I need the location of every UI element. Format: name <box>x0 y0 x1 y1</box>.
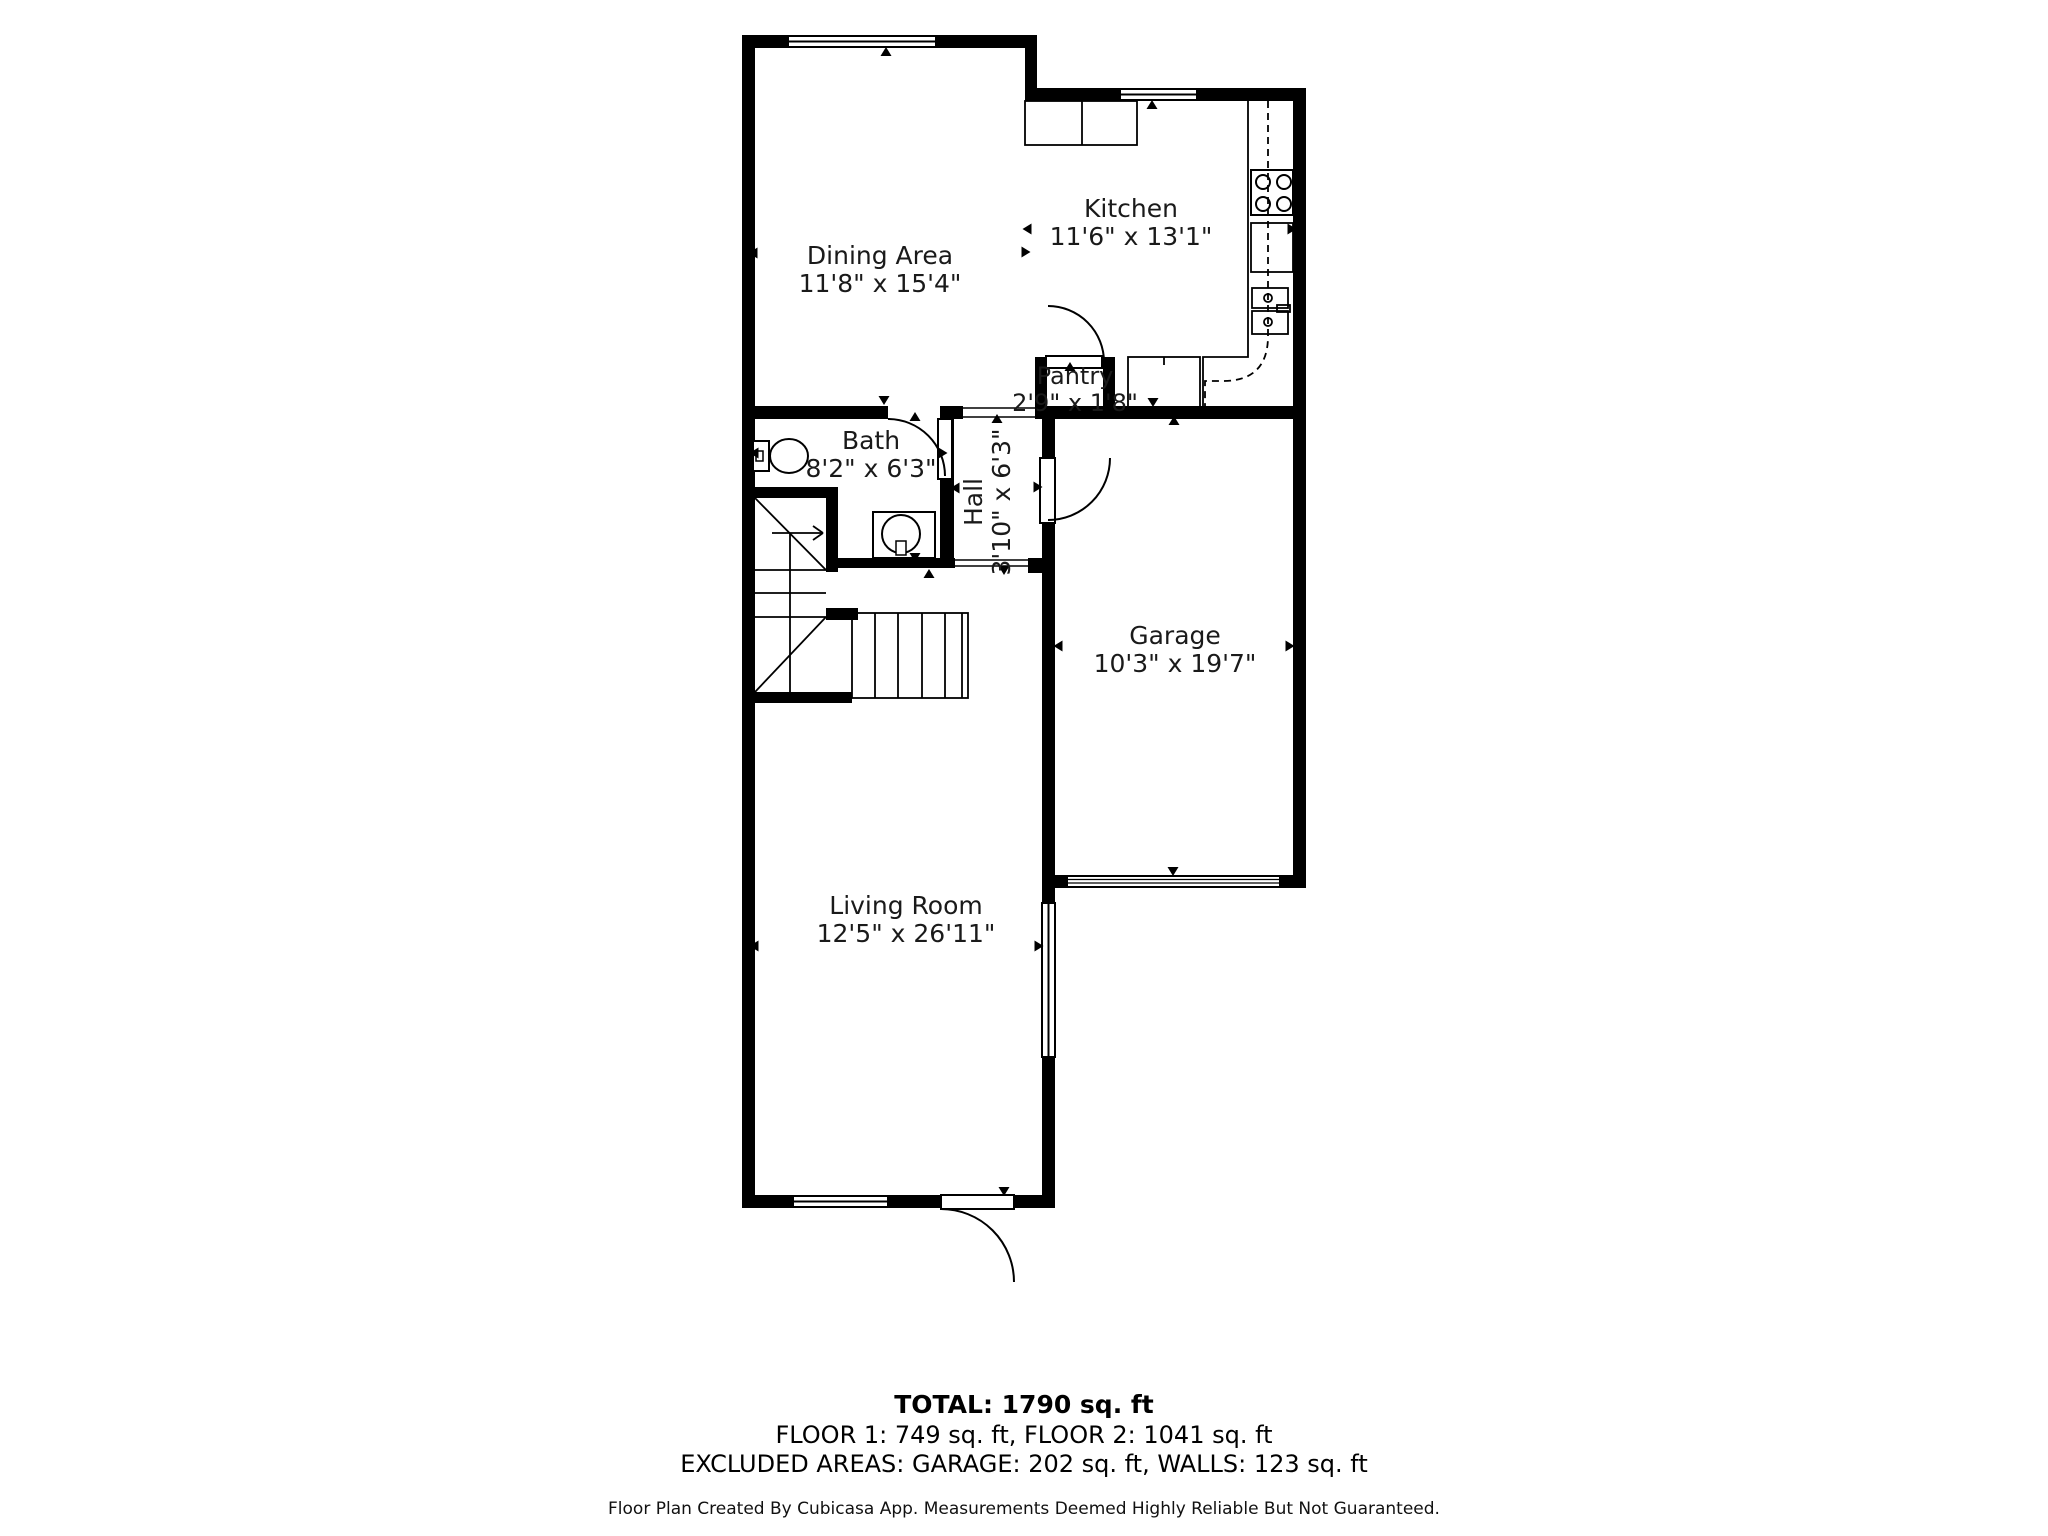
room-name: Garage <box>1094 622 1257 650</box>
room-label-hall: Hall 3'10" x 6'3" <box>960 429 1016 576</box>
stair-direction-arrow <box>772 526 823 540</box>
wall-hall-stub <box>1028 558 1042 573</box>
wall-garage-left-lower <box>1042 523 1055 888</box>
dim-arrow-up <box>910 412 921 421</box>
dim-arrow-up <box>924 569 935 578</box>
wall-right-upper <box>1293 88 1306 419</box>
room-dims: 11'8" x 15'4" <box>799 270 962 298</box>
sink-vanity-icon <box>873 512 935 558</box>
stair-lower-run <box>852 613 968 698</box>
counter-dashed-edge <box>1205 101 1268 406</box>
garage-entry-door <box>1040 458 1110 523</box>
pantry-door <box>1046 306 1104 368</box>
wall-stair-stub <box>826 608 858 620</box>
room-name: Living Room <box>817 892 996 920</box>
window-living-bottom <box>793 1196 888 1207</box>
counter-edge <box>1203 101 1248 406</box>
staircase <box>755 498 968 698</box>
dim-arrow-up <box>1147 100 1158 109</box>
kitchen-sink-icon <box>1252 288 1290 334</box>
area-summary: TOTAL: 1790 sq. ft FLOOR 1: 749 sq. ft, … <box>0 1392 2048 1518</box>
room-label-pantry: Pantry 2'9" x 1'8" <box>1012 363 1138 417</box>
room-label-kitchen: Kitchen 11'6" x 13'1" <box>1050 195 1213 251</box>
room-label-garage: Garage 10'3" x 19'7" <box>1094 622 1257 678</box>
room-label-bath: Bath 8'2" x 6'3" <box>805 427 936 483</box>
room-name: Dining Area <box>799 242 962 270</box>
dim-arrow-down <box>879 396 890 405</box>
room-dims: 12'5" x 26'11" <box>817 920 996 948</box>
dim-arrow-down <box>1148 398 1159 407</box>
room-name: Hall <box>960 429 988 576</box>
dim-arrow-right <box>1022 247 1031 258</box>
room-label-living: Living Room 12'5" x 26'11" <box>817 892 996 948</box>
garage-vehicle-door <box>1067 876 1280 887</box>
window-living-right <box>1042 903 1055 1057</box>
stove-icon <box>1251 170 1293 215</box>
floor-areas-text: FLOOR 1: 749 sq. ft, FLOOR 2: 1041 sq. f… <box>0 1424 2048 1447</box>
room-label-dining: Dining Area 11'8" x 15'4" <box>799 242 962 298</box>
wall-left-exterior <box>742 35 755 1208</box>
dim-arrow-left <box>1023 224 1032 235</box>
wall-bottom-right <box>1013 1195 1055 1208</box>
room-name: Pantry <box>1012 363 1138 390</box>
kitchen-counter-top-left <box>1025 101 1137 145</box>
floor-plan-drawing <box>0 0 2048 1536</box>
excluded-areas-text: EXCLUDED AREAS: GARAGE: 202 sq. ft, WALL… <box>0 1453 2048 1476</box>
wall-stair-top <box>753 487 838 498</box>
total-area-text: TOTAL: 1790 sq. ft <box>0 1392 2048 1418</box>
room-dims: 3'10" x 6'3" <box>988 429 1016 576</box>
room-name: Bath <box>805 427 936 455</box>
wall-dining-bottom-left <box>742 406 888 419</box>
room-dims: 10'3" x 19'7" <box>1094 650 1257 678</box>
window-dining-top <box>788 36 936 47</box>
fridge-icon <box>1128 357 1200 407</box>
room-dims: 11'6" x 13'1" <box>1050 223 1213 251</box>
room-name: Kitchen <box>1050 195 1213 223</box>
front-door <box>941 1195 1014 1282</box>
wall-bath-bottom <box>832 558 955 568</box>
room-dims: 8'2" x 6'3" <box>805 455 936 483</box>
disclaimer-text: Floor Plan Created By Cubicasa App. Meas… <box>0 1500 2048 1518</box>
kitchen-cabinet <box>1251 223 1293 272</box>
window-kitchen-top <box>1120 89 1197 100</box>
wall-stair-bottom <box>742 692 852 703</box>
dim-arrow-down <box>1168 867 1179 876</box>
wall-right-lower <box>1293 406 1306 888</box>
room-dims: 2'9" x 1'8" <box>1012 390 1138 417</box>
dim-arrow-up <box>881 47 892 56</box>
floor-plan-page: Dining Area 11'8" x 15'4" Kitchen 11'6" … <box>0 0 2048 1536</box>
wall-stair-right <box>826 487 838 572</box>
toilet-icon <box>753 439 808 473</box>
doors <box>888 306 1280 1282</box>
